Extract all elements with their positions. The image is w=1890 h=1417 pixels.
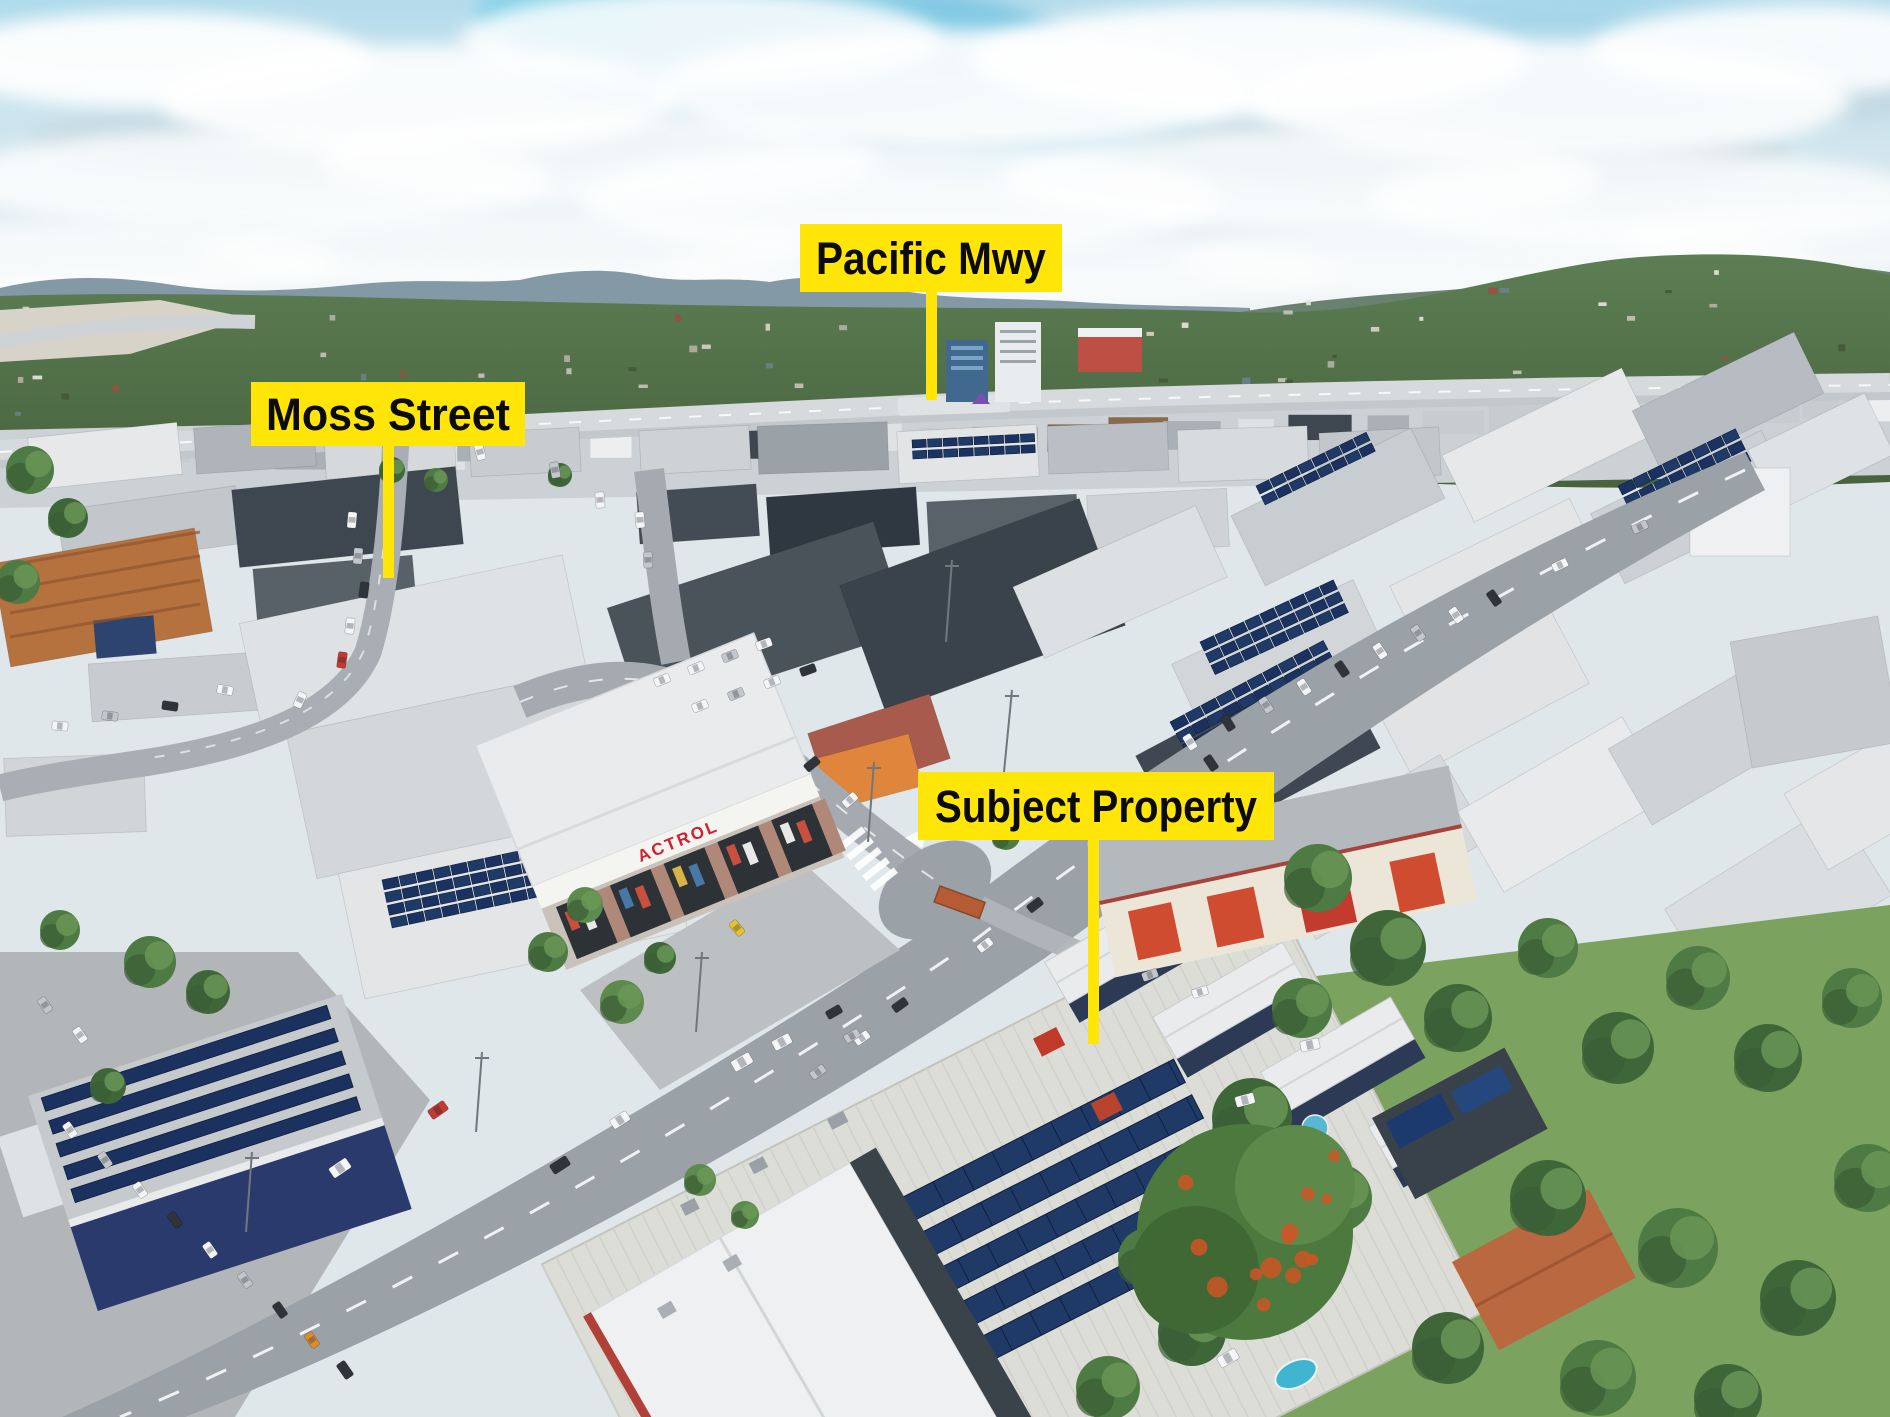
tree-foliage (145, 941, 174, 970)
tree-foliage (742, 1204, 757, 1219)
tree-foliage (1761, 1031, 1798, 1068)
label-text-pacific-mwy: Pacific Mwy (816, 233, 1046, 284)
distant-house (62, 394, 70, 400)
tree-foliage (1721, 1371, 1758, 1408)
tree-foliage (618, 984, 642, 1008)
tree-foliage (1380, 918, 1422, 960)
tree-canopy (684, 1164, 716, 1196)
solar-panel (990, 446, 1004, 455)
tree-foliage (657, 945, 675, 963)
tree-foliage (1670, 1216, 1714, 1260)
tree-canopy (1510, 1160, 1586, 1236)
orange-blossom (1301, 1187, 1315, 1201)
distant-house (112, 385, 118, 391)
tree-foliage (1131, 1206, 1259, 1334)
tree-canopy (1284, 844, 1352, 912)
tree-foliage (104, 1072, 124, 1092)
car (336, 1360, 354, 1380)
tree-canopy (124, 936, 176, 988)
distant-house (1723, 356, 1728, 360)
distant-house (1159, 378, 1168, 382)
distant-house (1598, 302, 1606, 306)
leader-line-moss-street (383, 442, 394, 578)
distant-house (1371, 327, 1379, 332)
leader-line-pacific-mwy (926, 288, 937, 400)
tree-canopy (600, 980, 644, 1024)
car-windshield (57, 722, 63, 729)
tree-canopy (1560, 1340, 1636, 1416)
distant-house (566, 368, 571, 374)
distant-house (1182, 323, 1189, 328)
tree-foliage (204, 974, 228, 998)
tree-canopy (1822, 968, 1882, 1028)
solar-panel (913, 450, 927, 459)
tree-foliage (1451, 991, 1488, 1028)
solar-panel (928, 449, 942, 458)
tree-canopy (1760, 1260, 1836, 1336)
car-windshield (107, 712, 113, 720)
solar-panel (974, 447, 988, 456)
warehouse-roof (757, 422, 889, 475)
tree-canopy (1412, 1312, 1484, 1384)
tree-canopy (48, 498, 88, 538)
tower-glass (951, 356, 983, 360)
tower-windows (1000, 350, 1036, 353)
tower-glass (951, 366, 983, 370)
tree-canopy (644, 942, 676, 974)
orange-blossom (1257, 1298, 1270, 1311)
tree-foliage (1846, 974, 1879, 1007)
distant-house (766, 324, 770, 331)
tree-foliage (1590, 1348, 1632, 1390)
car-body (161, 700, 178, 711)
tree-foliage (1102, 1362, 1137, 1397)
solar-panel (944, 449, 958, 458)
power-pole (1004, 690, 1012, 772)
tree-foliage (434, 470, 447, 483)
tree-canopy (1272, 978, 1332, 1038)
solar-panel (912, 439, 926, 448)
solar-panel (1005, 445, 1019, 454)
tree-canopy (424, 468, 448, 492)
car (161, 700, 178, 711)
tree-foliage (544, 936, 566, 958)
solar-panel (1005, 434, 1019, 443)
car-windshield (348, 517, 355, 523)
car-windshield (346, 623, 354, 629)
tower-windows (1000, 330, 1036, 333)
distant-house (1332, 355, 1336, 358)
tree-foliage (56, 914, 78, 936)
orange-blossom (1329, 1150, 1340, 1161)
orange-blossom (1178, 1175, 1193, 1190)
orange-blossom (1207, 1277, 1228, 1298)
distant-house (1488, 288, 1497, 294)
car-windshield (354, 553, 361, 559)
solar-panel (943, 438, 957, 447)
tree-foliage (1790, 1268, 1832, 1310)
hotel-roof-band (1078, 328, 1142, 337)
car (353, 548, 363, 565)
tower-glass (951, 346, 983, 350)
label-text-subject-property: Subject Property (935, 781, 1257, 832)
aerial-photo: ACTROL (0, 0, 1890, 1417)
tree-canopy (731, 1201, 759, 1229)
car (347, 512, 357, 529)
orange-blossom (1250, 1268, 1262, 1280)
distant-house (33, 376, 43, 380)
tree-canopy (1518, 918, 1578, 978)
tree-foliage (1296, 984, 1329, 1017)
tree-canopy (1638, 1208, 1718, 1288)
distant-house (689, 346, 697, 353)
tower-windows (1000, 340, 1036, 343)
label-text-moss-street: Moss Street (266, 389, 510, 440)
distant-house (1328, 361, 1335, 367)
tree-canopy (1734, 1024, 1802, 1092)
solar-panel (974, 436, 988, 445)
distant-house (1146, 332, 1153, 336)
orange-blossom (1261, 1257, 1282, 1278)
solar-panel (927, 438, 941, 447)
tree-canopy (1666, 946, 1730, 1010)
distant-house (795, 383, 804, 388)
power-pole (476, 1052, 482, 1132)
tree-foliage (581, 891, 601, 911)
distant-house (839, 325, 847, 330)
warehouse-roof (639, 425, 751, 475)
distant-house (1709, 304, 1717, 308)
distant-house (564, 355, 570, 362)
car-body (336, 1360, 354, 1380)
tree-canopy (6, 446, 54, 494)
tree-foliage (1540, 1168, 1582, 1210)
car (336, 651, 347, 668)
car (102, 711, 119, 722)
distant-house (18, 377, 23, 383)
car (345, 618, 356, 635)
distant-house (1306, 300, 1311, 306)
car (427, 1100, 449, 1120)
distant-house (1283, 310, 1292, 314)
distant-house (766, 363, 773, 368)
orange-blossom (1190, 1239, 1207, 1256)
distant-house (15, 412, 21, 416)
orange-blossom (1281, 1224, 1298, 1241)
tree-canopy (567, 887, 603, 923)
tree-foliage (1611, 1019, 1651, 1059)
tree-canopy (40, 910, 80, 950)
distant-house (1838, 344, 1845, 351)
tree-foliage (64, 502, 86, 524)
solar-panel (958, 437, 972, 446)
leader-line-subject-property (1088, 836, 1099, 1044)
tree-foliage (1441, 1319, 1481, 1359)
distant-house (400, 371, 404, 377)
tree-canopy (1582, 1012, 1654, 1084)
solar-panel (959, 448, 973, 457)
car (643, 552, 653, 568)
distant-house (675, 315, 681, 322)
tree-canopy (1076, 1356, 1140, 1417)
orange-blossom (1285, 1268, 1301, 1284)
warehouse-roof (1730, 616, 1890, 768)
distant-house (330, 315, 336, 321)
distant-house (320, 353, 326, 357)
tree-canopy (90, 1068, 126, 1104)
car-windshield (636, 517, 643, 523)
tower-windows (1000, 360, 1036, 363)
car (635, 512, 645, 529)
distant-house (1513, 371, 1522, 375)
warehouse-roof (1047, 422, 1169, 474)
tree-foliage (1692, 952, 1727, 987)
distant-house (1665, 290, 1672, 293)
car-windshield (644, 557, 651, 563)
distant-house (1627, 316, 1635, 321)
car (595, 492, 605, 509)
tree-canopy (186, 970, 230, 1014)
tree-foliage (697, 1167, 715, 1185)
car (52, 721, 69, 731)
distant-house (639, 385, 648, 388)
distant-house (702, 345, 711, 349)
orange-blossom (1295, 1251, 1312, 1268)
tree-foliage (1311, 851, 1348, 888)
car-windshield (596, 497, 603, 503)
tree-canopy (528, 932, 568, 972)
solar-panel (1021, 445, 1035, 454)
solar-panel (989, 435, 1003, 444)
tree-foliage (1542, 924, 1575, 957)
aerial-photograph: ACTROL (0, 0, 1890, 1417)
tree-canopy (1424, 984, 1492, 1052)
solar-panel (1020, 434, 1034, 443)
distant-house (1714, 270, 1719, 275)
orange-blossom (1322, 1194, 1332, 1204)
car (359, 582, 370, 599)
tree-foliage (25, 451, 51, 477)
tree-foliage (14, 564, 38, 588)
distant-house (478, 373, 484, 377)
distant-house (1242, 378, 1250, 385)
distant-house (1500, 288, 1510, 293)
car-body (359, 582, 370, 599)
distant-house (629, 367, 637, 371)
distant-house (1419, 317, 1423, 321)
car-windshield (338, 657, 346, 663)
tree-canopy (1350, 910, 1426, 986)
distant-house (361, 374, 366, 381)
